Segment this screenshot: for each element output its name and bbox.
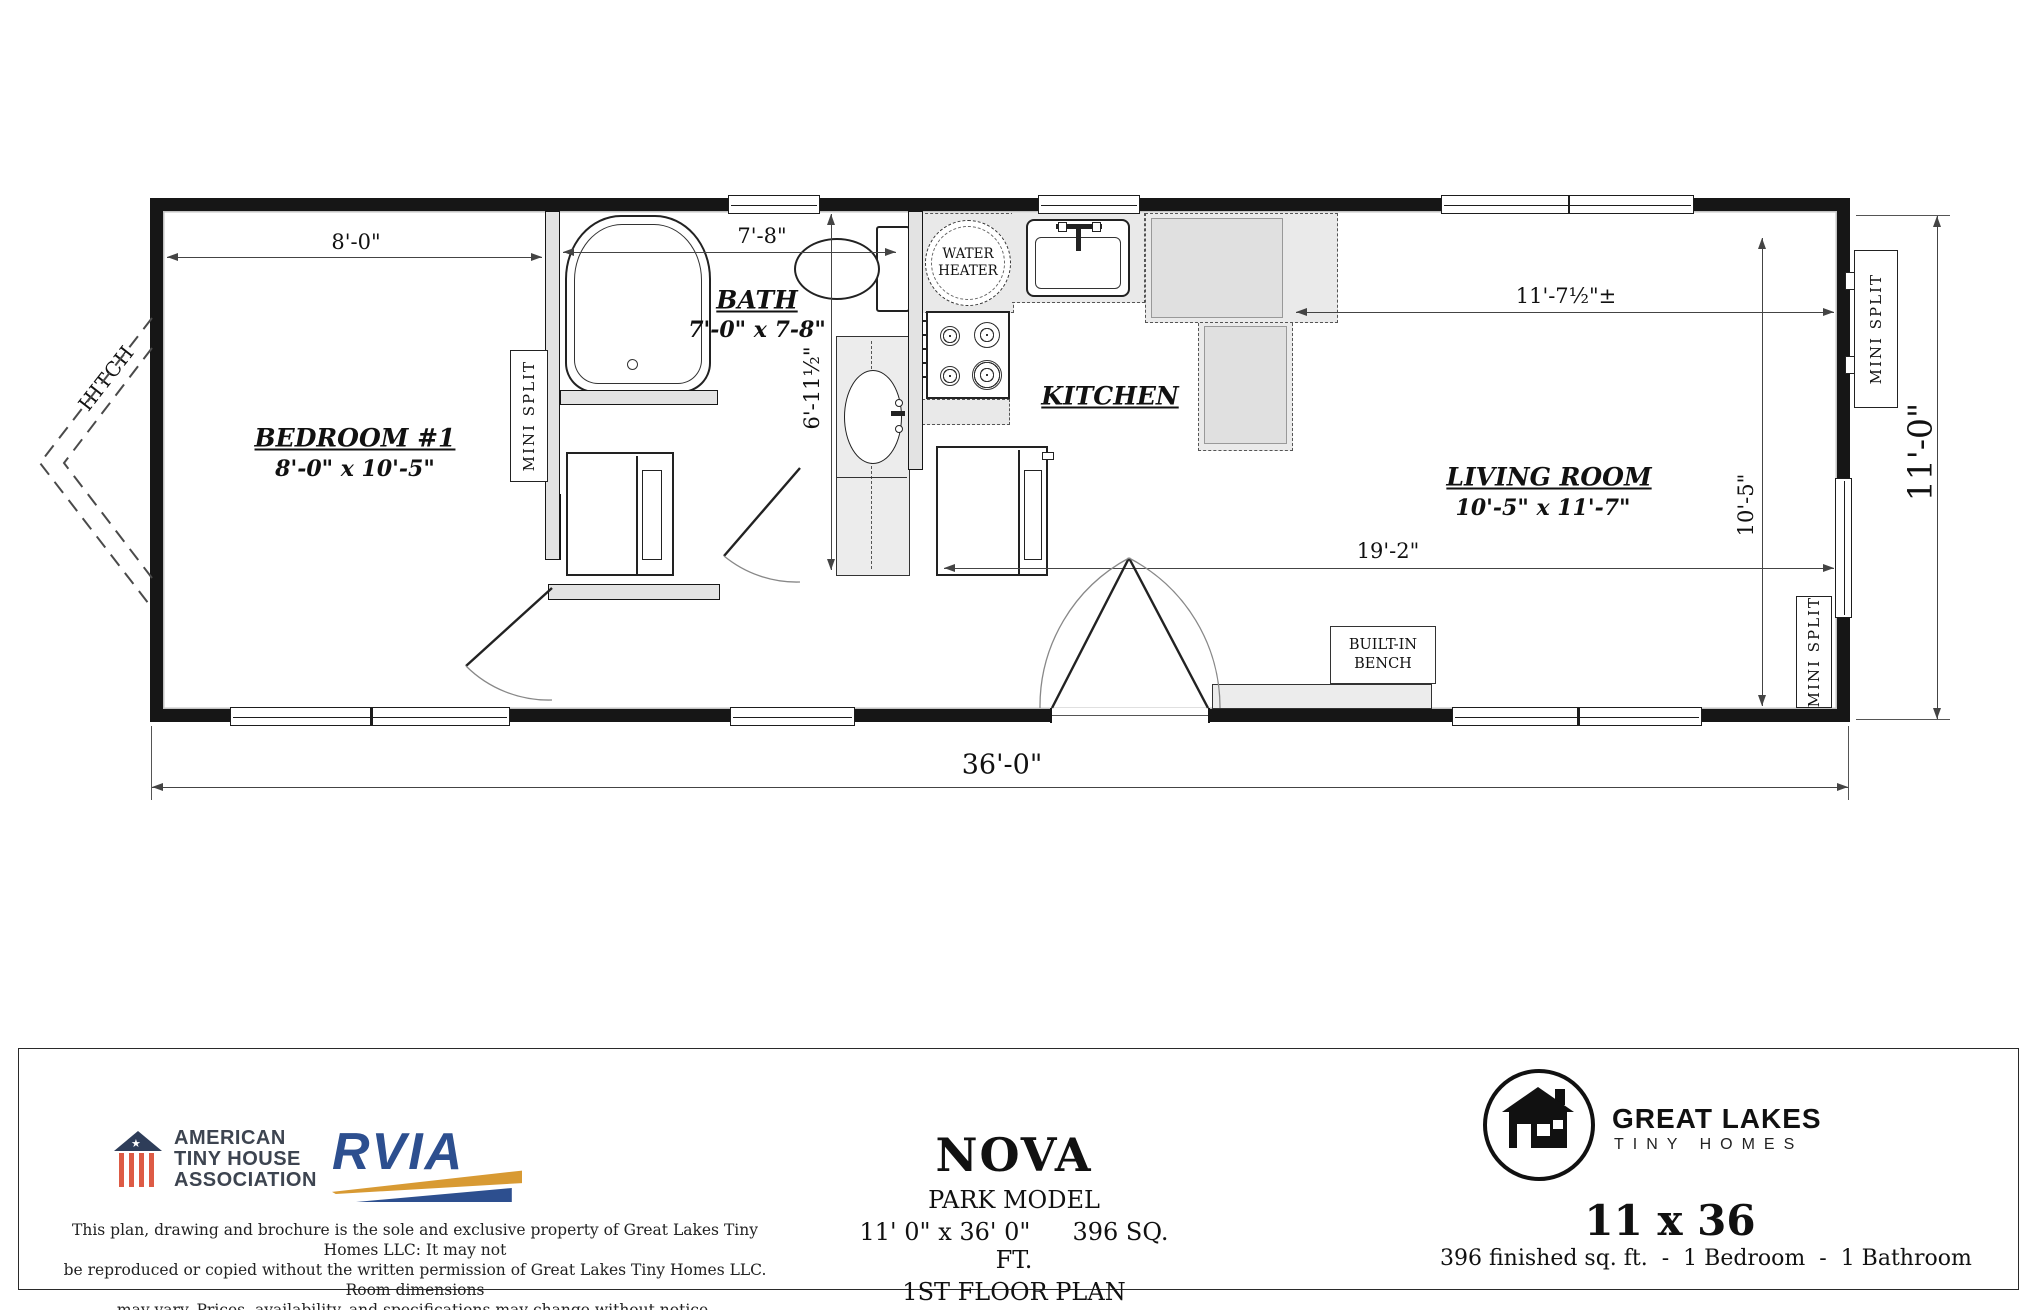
built-in-bench xyxy=(1212,684,1432,709)
exterior-wall-left xyxy=(150,198,163,722)
washer-dryer xyxy=(566,452,674,576)
room-label-kitchen: KITCHEN xyxy=(1041,382,1178,411)
kitchen-sink xyxy=(1026,219,1130,297)
window xyxy=(1038,195,1140,214)
room-dims-living: 10'-5" x 11'-7" xyxy=(1456,495,1631,521)
dimension-line xyxy=(1296,312,1834,313)
extension-line xyxy=(1856,215,1950,216)
dimension-line xyxy=(944,568,1834,569)
bathtub xyxy=(565,215,711,393)
water-heater: WATER HEATER xyxy=(925,220,1011,306)
model-specs: 396 finished sq. ft. - 1 Bedroom - 1 Bat… xyxy=(1440,1246,1890,1271)
counter-below-stove xyxy=(922,399,1010,425)
window xyxy=(230,707,510,726)
refrigerator xyxy=(936,446,1048,576)
mini-split-unit: MINI SPLIT xyxy=(1854,250,1898,408)
dimension-line xyxy=(831,214,832,570)
dimension-line xyxy=(167,257,542,258)
dim-label-bath-depth: 6'-11½" xyxy=(800,342,824,435)
atha-line2: TINY HOUSE xyxy=(174,1149,317,1170)
stove xyxy=(926,311,1010,399)
mini-split-unit: MINI SPLIT xyxy=(510,350,548,482)
floor-plan-label: 1ST FLOOR PLAN xyxy=(849,1278,1179,1306)
entry-door-opening xyxy=(1050,708,1210,723)
model-size: 11 x 36 xyxy=(1520,1196,1820,1245)
dim-label-living-run: 19'-2" xyxy=(1352,539,1425,563)
room-label-living: LIVING ROOM xyxy=(1446,463,1651,492)
tub-wall xyxy=(560,390,718,405)
model-type: PARK MODEL xyxy=(849,1186,1179,1214)
dim-label-living-depth: 10'-5" xyxy=(1734,469,1758,542)
brand-name: GREAT LAKES xyxy=(1612,1103,1822,1135)
rvia-wordmark: RVIA xyxy=(332,1122,464,1182)
atha-line3: ASSOCIATION xyxy=(174,1170,317,1191)
atha-logo: ★ AMERICAN TINY HOUSE ASSOCIATION xyxy=(112,1128,317,1191)
window xyxy=(1452,707,1702,726)
window xyxy=(1835,478,1852,618)
dimension-line xyxy=(152,787,1848,788)
rvia-logo: RVIA xyxy=(332,1128,522,1198)
toilet-tank xyxy=(876,226,910,312)
vanity-sink xyxy=(844,370,902,464)
toilet-bowl xyxy=(794,238,880,300)
hitch-lines xyxy=(40,318,152,608)
dim-label-overall-width: 36'-0" xyxy=(957,750,1048,781)
entry-stub-wall xyxy=(548,584,720,600)
extension-line xyxy=(1856,719,1950,720)
brand-tagline: TINY HOMES xyxy=(1614,1136,1803,1154)
built-in-bench-label: BUILT-IN BENCH xyxy=(1330,626,1436,684)
window xyxy=(1441,195,1694,214)
dimension-line xyxy=(1762,238,1763,706)
room-label-bedroom: BEDROOM #1 xyxy=(255,424,456,453)
water-heater-label: WATER HEATER xyxy=(932,246,1004,280)
extension-line xyxy=(151,726,152,800)
brand-logo-circle xyxy=(1483,1069,1595,1181)
atha-house-icon: ★ xyxy=(112,1131,164,1189)
kitchen-island-top xyxy=(1204,326,1287,444)
hitch-label: HITCH xyxy=(73,340,139,415)
plan-title-block: NOVA PARK MODEL 11' 0" x 36' 0"396 SQ. F… xyxy=(849,1128,1179,1306)
kitchen-counter-top xyxy=(1151,218,1283,318)
atha-line1: AMERICAN xyxy=(174,1128,317,1149)
window xyxy=(728,195,820,214)
dim-label-bedroom-width: 8'-0" xyxy=(326,230,385,254)
dimension-line xyxy=(563,252,896,253)
room-dims-bath: 7'-0" x 7-8" xyxy=(688,317,826,343)
room-label-bath: BATH xyxy=(716,286,797,315)
window xyxy=(730,707,855,726)
floor-plan-sheet: WATER HEATER xyxy=(0,0,2037,1310)
dim-label-bath-width: 7'-8" xyxy=(732,224,791,248)
tub-drain-icon xyxy=(627,359,638,370)
dim-label-living-width: 11'-7½"± xyxy=(1511,284,1622,308)
copyright-text: This plan, drawing and brochure is the s… xyxy=(55,1220,775,1310)
model-name: NOVA xyxy=(849,1128,1179,1182)
kitchen-wall xyxy=(908,211,923,470)
extension-line xyxy=(1848,726,1849,800)
room-dims-bedroom: 8'-0" x 10'-5" xyxy=(275,456,435,482)
dim-label-overall-height: 11'-0" xyxy=(1901,398,1940,506)
mini-split-unit: MINI SPLIT xyxy=(1796,596,1832,708)
faucet-icon xyxy=(891,411,905,416)
model-dims: 11' 0" x 36' 0" xyxy=(860,1218,1031,1246)
